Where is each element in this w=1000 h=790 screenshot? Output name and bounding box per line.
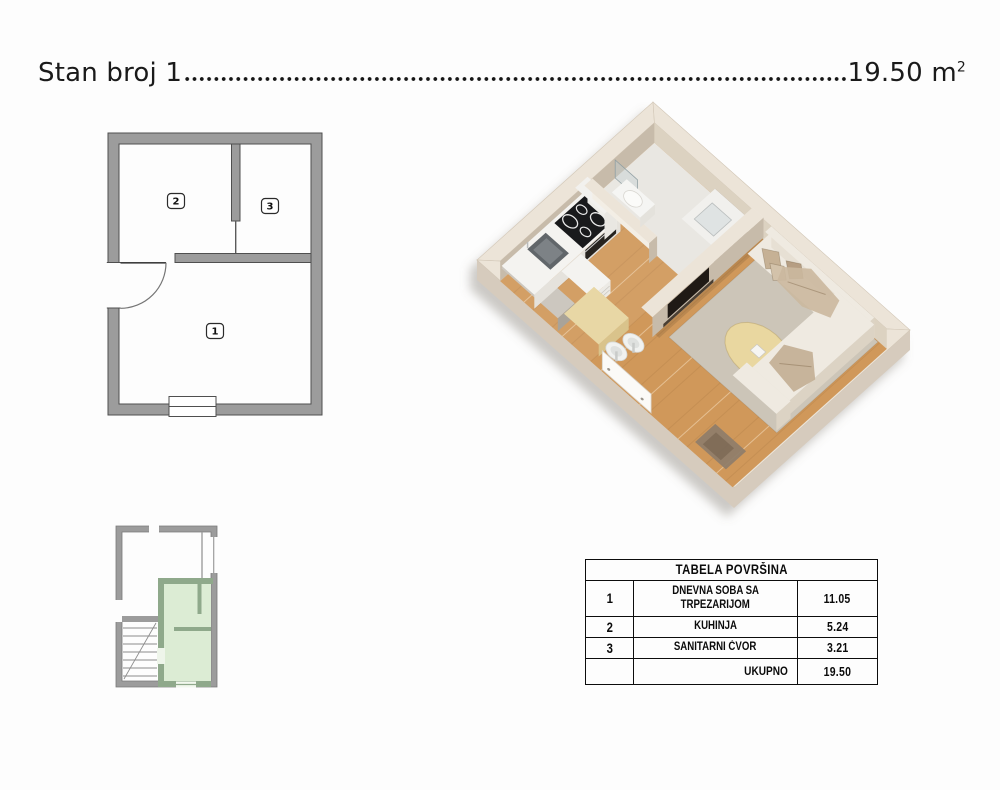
row-number: 1: [586, 581, 634, 617]
door-swing-arc: [121, 263, 167, 309]
room-name: KUHINJA: [634, 617, 798, 638]
row-number: 2: [586, 617, 634, 638]
empty-cell: [586, 659, 634, 685]
table-row: 1 DNEVNA SOBA SA TRPEZARIJOM 11.05: [586, 581, 878, 617]
outer-walls: [108, 133, 322, 415]
room-area: 11.05: [798, 581, 878, 617]
gap-left: [115, 600, 123, 622]
room-name: DNEVNA SOBA SA TRPEZARIJOM: [634, 581, 798, 617]
table-title: TABELA POVRŠINA: [675, 562, 787, 577]
floorplan-2d: 2 3 1: [100, 128, 330, 423]
table-title-row: TABELA POVRŠINA: [586, 560, 878, 581]
total-value: 19.50: [798, 659, 878, 685]
room-label-1: 1: [207, 324, 224, 339]
isometric-3d-view: [430, 85, 940, 555]
highlighted-apartment: [157, 578, 213, 688]
table-row: 2 KUHINJA 5.24: [586, 617, 878, 638]
room-area: 5.24: [798, 617, 878, 638]
sheet-header: Stan broj 1 19.50 m2: [38, 58, 966, 88]
leader-dots: [184, 75, 846, 83]
staircase: [123, 623, 157, 679]
green-crosswall: [174, 627, 211, 631]
table-total-row: UKUPNO 19.50: [586, 659, 878, 685]
green-door-gap: [157, 648, 165, 664]
room-area: 3.21: [798, 638, 878, 659]
row-number: 3: [586, 638, 634, 659]
svg-text:2: 2: [173, 197, 180, 208]
room-label-3: 3: [262, 199, 279, 214]
door-opening: [107, 263, 121, 309]
scene-3d: [470, 102, 910, 517]
apartment-title: Stan broj 1: [38, 58, 182, 88]
svg-text:3: 3: [267, 202, 274, 213]
total-label: UKUPNO: [634, 659, 798, 685]
total-area: 19.50 m2: [847, 58, 966, 88]
room-label-2: 2: [168, 194, 185, 209]
table-row: 3 SANITARNI ĆVOR 3.21: [586, 638, 878, 659]
stair-wall: [122, 616, 158, 622]
divider-wall: [232, 144, 241, 221]
cross-wall: [175, 254, 311, 263]
gap-top: [149, 525, 159, 534]
svg-text:1: 1: [212, 327, 219, 338]
floorplan-sheet: { "header": { "title": "Stan broj 1", "a…: [0, 0, 1000, 790]
site-key-plan: [108, 518, 223, 694]
area-table: TABELA POVRŠINA 1 DNEVNA SOBA SA TRPEZAR…: [585, 559, 878, 685]
room-name: SANITARNI ĆVOR: [634, 638, 798, 659]
green-divider: [198, 584, 202, 614]
